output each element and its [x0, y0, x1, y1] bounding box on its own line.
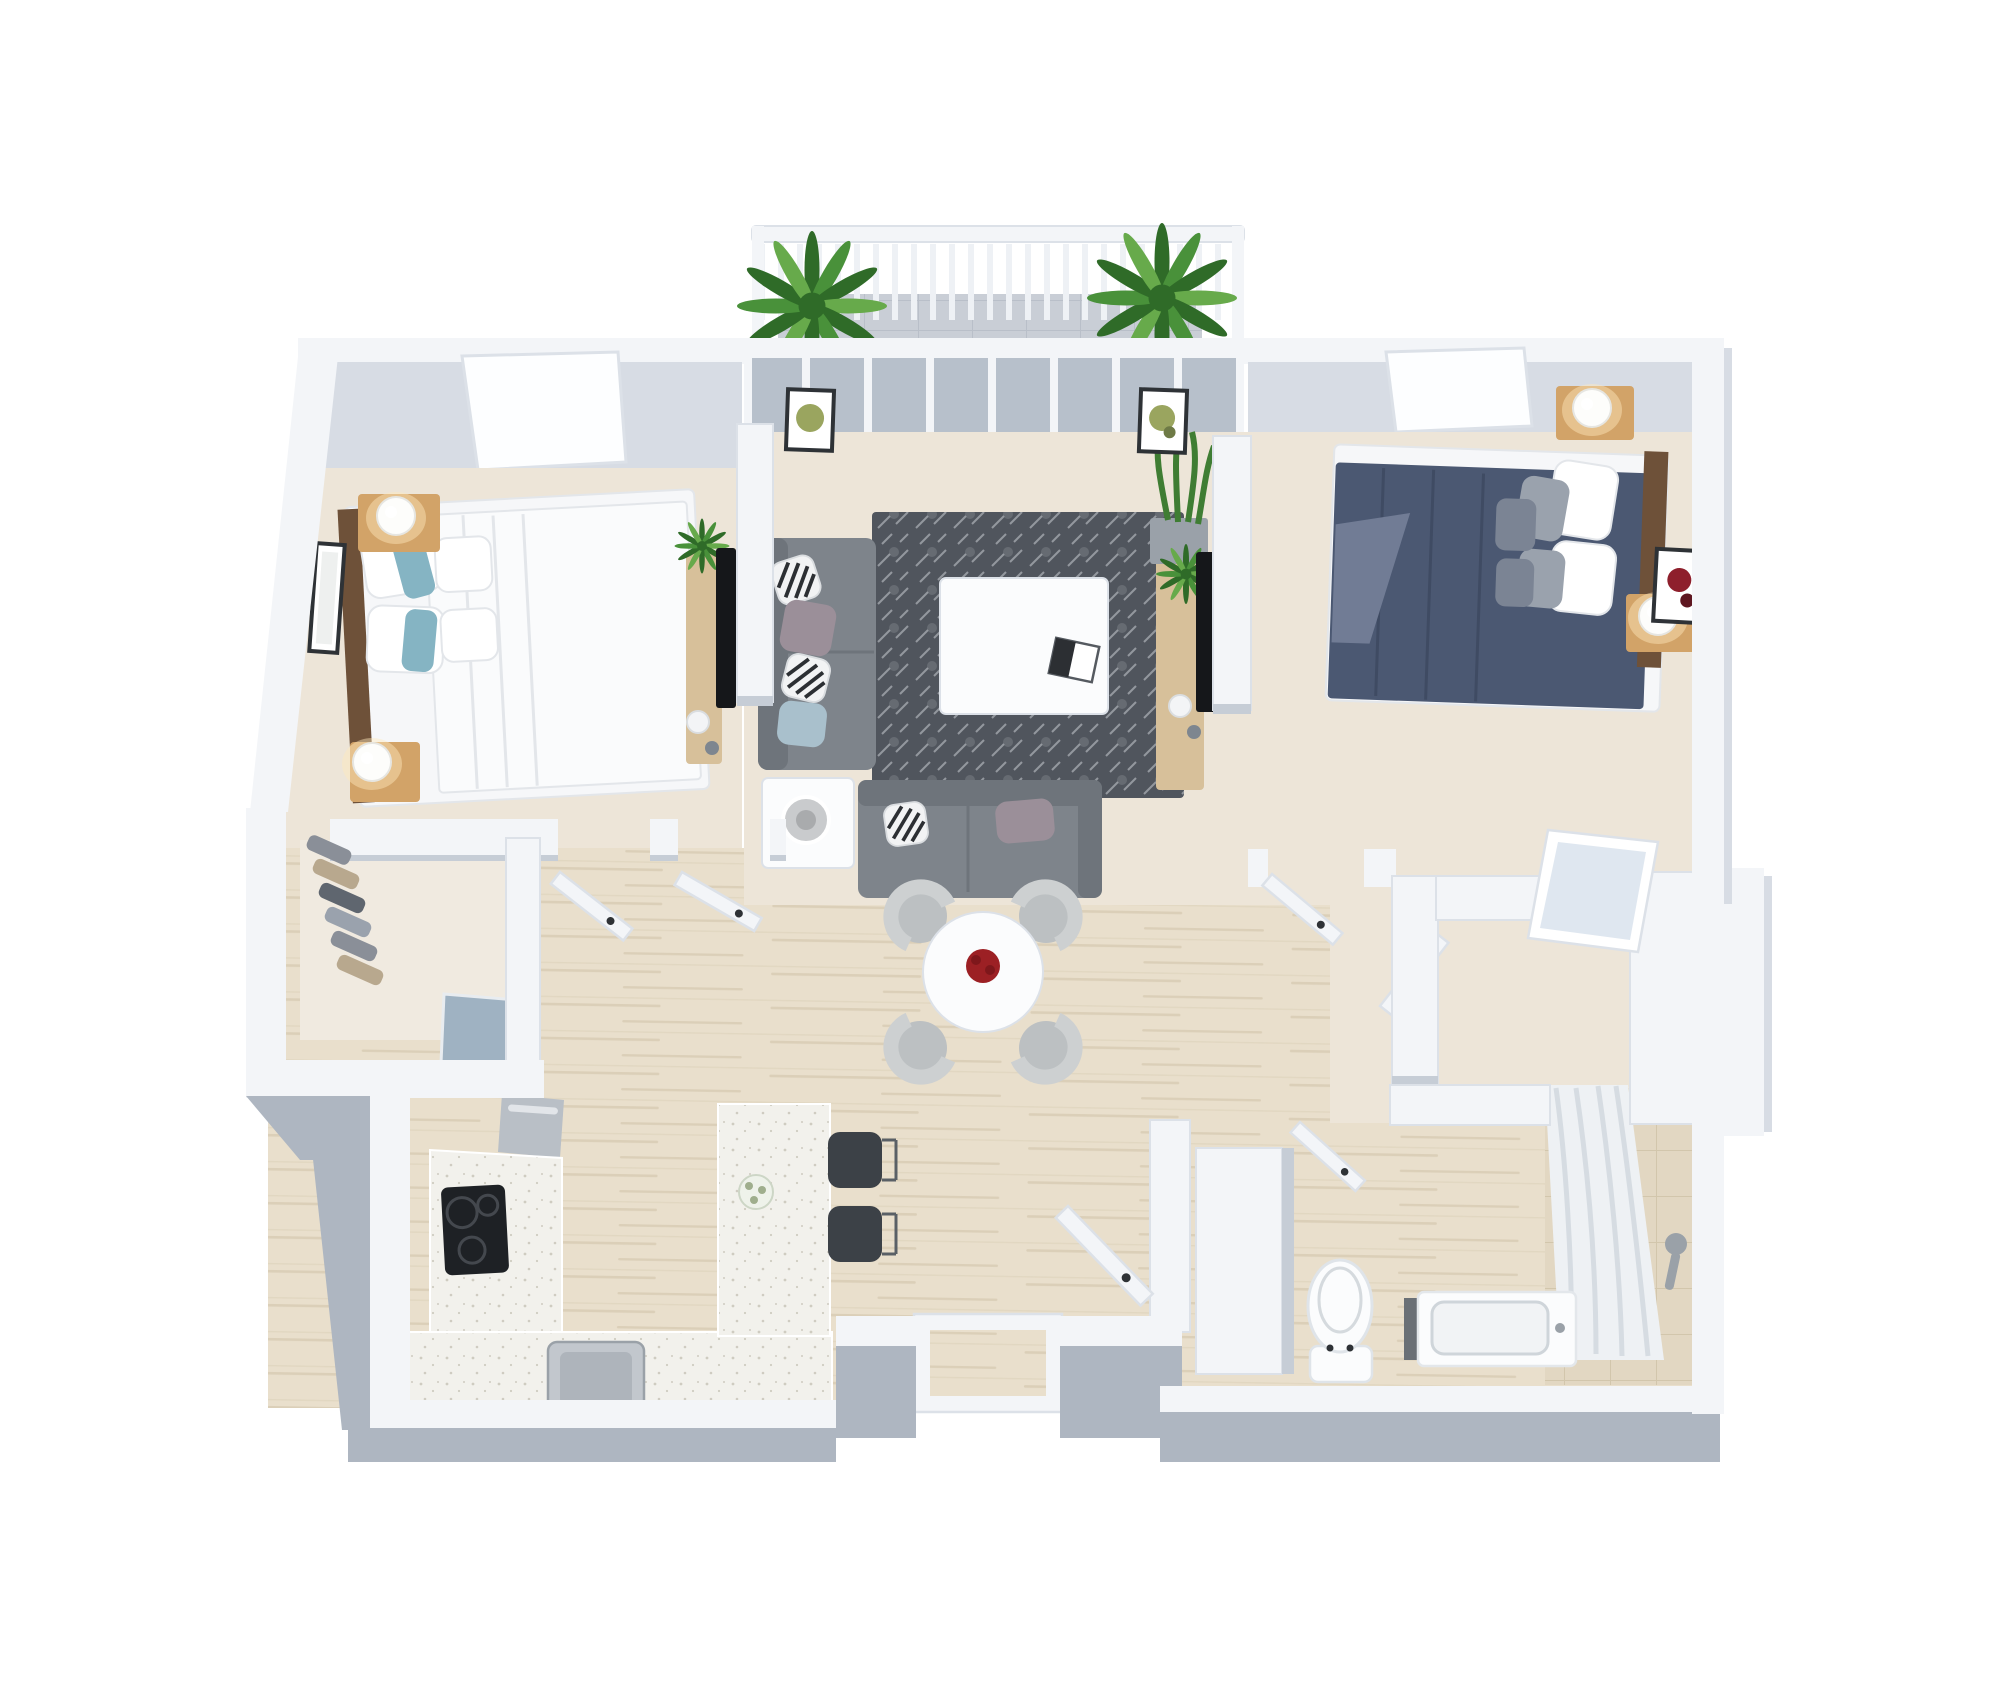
- sofa-pillow-mauve-2: [994, 798, 1055, 845]
- sofa-long-backrest: [858, 780, 1102, 806]
- divider-wall-left-cap: [737, 696, 773, 706]
- console-left-decor-stone: [705, 741, 719, 755]
- lamp-right-top-icon: [1562, 384, 1622, 436]
- entry-south-face-left: [836, 1346, 916, 1438]
- peninsula-flowers: [739, 1175, 773, 1209]
- console-right-decor-stone: [1187, 725, 1201, 739]
- induction-cooktop: [441, 1184, 510, 1275]
- lamp-left-bottom-icon: [342, 738, 402, 790]
- balcony-rail-top: [752, 226, 1244, 242]
- rose-petal-detail-2: [985, 965, 995, 975]
- oven: [498, 1094, 564, 1158]
- divider-wall-right-cap: [1213, 704, 1251, 714]
- coffee-table: [940, 578, 1108, 714]
- sofa-pillow-zebra-3: [883, 801, 930, 848]
- bed-right-pillow-accent-1: [1495, 498, 1537, 551]
- floorplan-svg: 3D isometric floor plan rendering — two-…: [0, 0, 2000, 1700]
- tv-left-screen: [716, 548, 736, 708]
- toilet-hinge-left: [1327, 1345, 1334, 1352]
- wall-art-living-right: [1139, 389, 1187, 453]
- bathroom-south-wall: [1160, 1386, 1720, 1414]
- sofa-pillow-blue: [776, 700, 828, 749]
- sofa-armrest: [1078, 780, 1102, 898]
- bed-right-pillow-accent-2: [1495, 558, 1535, 607]
- entry-south-wall-left: [836, 1316, 916, 1348]
- east-wall-edge: [1724, 348, 1732, 904]
- rose-centerpiece-icon: [966, 949, 1000, 983]
- closet-south-wall: [246, 1060, 544, 1098]
- walkin-mirror-door: [1528, 830, 1658, 952]
- entry-tall-cabinet-side: [1282, 1148, 1294, 1374]
- east-bulge-edge: [1764, 876, 1772, 1132]
- kitchen-west-wall: [370, 1096, 410, 1432]
- bed-left-pillow-white-3: [434, 536, 493, 593]
- closet-west-wall: [246, 808, 286, 1068]
- kitchen-south-wall: [370, 1400, 836, 1430]
- divider-wall-left: [737, 424, 773, 702]
- toilet-hinge-right: [1347, 1345, 1354, 1352]
- entry-south-wall-right: [1060, 1316, 1182, 1348]
- floorplan-render: 3D isometric floor plan rendering — two-…: [0, 0, 2000, 1700]
- shower-fixture-icon: [1665, 1233, 1687, 1255]
- vanity-basin: [1432, 1302, 1548, 1354]
- entry-corridor-wall: [1150, 1120, 1190, 1332]
- bed-left-pillow-white-4: [440, 608, 499, 663]
- console-left-decor-bowl: [687, 711, 709, 733]
- closet-left-east-wall: [506, 838, 540, 1066]
- divider-wall-right: [1213, 436, 1251, 710]
- wall-art-living-left: [786, 389, 834, 451]
- console-right-decor-plate: [1169, 695, 1191, 717]
- vanity-faucet: [1555, 1323, 1565, 1333]
- bedroom-left-window: [462, 352, 626, 470]
- lamp-left-top-icon: [366, 492, 426, 544]
- bathroom-south-wall-face: [1160, 1412, 1720, 1462]
- kitchen-south-wall-face: [348, 1428, 836, 1462]
- bathroom-east-wall: [1692, 1132, 1724, 1414]
- end-table-lamp-finial: [796, 810, 816, 830]
- east-wall-bulge: [1692, 868, 1764, 1136]
- east-wall: [1692, 338, 1724, 908]
- bed-right: [1326, 440, 1669, 711]
- toilet: [1308, 1260, 1372, 1382]
- entry-tall-cabinet: [1196, 1148, 1282, 1374]
- sofa-pillow-mauve-1: [778, 598, 838, 658]
- toilet-bowl: [1308, 1260, 1372, 1352]
- bedroom-left: [309, 489, 709, 807]
- entry-threshold: [914, 1314, 1062, 1412]
- bathroom-north-wall: [1390, 1085, 1550, 1125]
- rose-petal-detail: [971, 955, 981, 965]
- bed-left-pillow-teal-2: [401, 608, 438, 673]
- vanity-side-cabinet: [1404, 1298, 1418, 1360]
- walkin-wall-vertical: [1392, 876, 1438, 1084]
- kitchen-peninsula: [718, 1104, 830, 1336]
- vanity: [1404, 1292, 1576, 1366]
- bedroom-right-window: [1386, 348, 1532, 432]
